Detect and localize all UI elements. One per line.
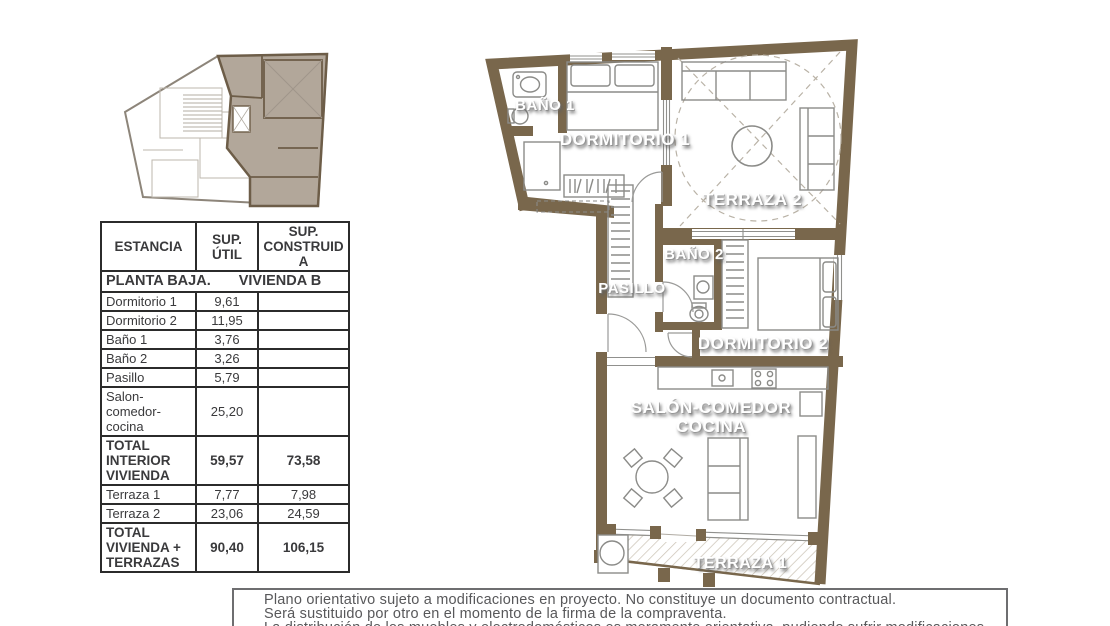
disclaimer-box: Plano orientativo sujeto a modificacione…	[232, 588, 1008, 626]
header-estancia: ESTANCIA	[101, 222, 196, 271]
salon-sofa-icon	[708, 438, 748, 520]
terraza2-sofa-right	[800, 108, 834, 190]
table-row: Dormitorio 1 9,61	[101, 292, 349, 311]
fridge-icon	[800, 392, 822, 416]
dining-table-icon	[624, 449, 682, 507]
bed2-icon	[758, 258, 838, 330]
table-row: Terraza 2 23,06 24,59	[101, 504, 349, 523]
overview-elevator	[233, 106, 250, 132]
label-terraza1: TERRAZA 1	[668, 554, 813, 573]
disclaimer-line1: Plano orientativo sujeto a modificacione…	[264, 593, 998, 607]
section-title: PLANTA BAJA.	[106, 273, 211, 289]
label-salon: SALÓN-COMEDOR COCINA	[622, 398, 800, 436]
corridor-left-wall	[596, 212, 607, 314]
table-section-row: PLANTA BAJA.VIVIENDA B	[101, 271, 349, 292]
label-bano1: BAÑO 1	[500, 96, 590, 115]
label-dormitorio1: DORMITORIO 1	[550, 130, 700, 149]
table-row: Dormitorio 2 11,95	[101, 311, 349, 330]
header-sup-util: SUP. ÚTIL	[196, 222, 258, 271]
terraza2-round-table	[732, 126, 772, 166]
header-sup-construida: SUP. CONSTRUIDA	[258, 222, 349, 271]
table-row-total-interior: TOTAL INTERIOR VIVIENDA 59,57 73,58	[101, 436, 349, 485]
kitchen-counter-icon	[658, 367, 828, 389]
table-row: Salon-comedor-cocina 25,20	[101, 387, 349, 436]
disclaimer-line2: Será sustituido por otro en el momento d…	[264, 607, 998, 621]
label-dormitorio2: DORMITORIO 2	[688, 334, 838, 353]
table-row: Pasillo 5,79	[101, 368, 349, 387]
label-salon-line2: COCINA	[622, 417, 800, 436]
bano2-sink-icon	[694, 276, 713, 299]
disclaimer-line3: La distribución de los muebles y electro…	[264, 621, 998, 626]
table-row: Baño 1 3,76	[101, 330, 349, 349]
label-salon-line1: SALÓN-COMEDOR	[622, 398, 800, 417]
label-pasillo: PASILLO	[586, 279, 678, 298]
door-dormitorio1	[632, 172, 662, 202]
label-bano2: BAÑO 2	[652, 245, 736, 264]
table-row: Terraza 1 7,77 7,98	[101, 485, 349, 504]
section-unit: VIVIENDA B	[239, 274, 321, 289]
table-row: Baño 2 3,26	[101, 349, 349, 368]
terraza1-table-icon	[598, 535, 628, 573]
sideboard-icon	[798, 436, 816, 518]
areas-table: ESTANCIA SUP. ÚTIL SUP. CONSTRUIDA PLANT…	[100, 221, 350, 573]
wardrobe1-icon	[564, 175, 624, 197]
label-terraza2: TERRAZA 2	[680, 190, 825, 209]
overview-plan	[108, 30, 348, 220]
door-entrance	[608, 314, 646, 352]
bathtub-icon	[513, 72, 546, 97]
table-row-total-vivienda: TOTAL VIVIENDA + TERRAZAS 90,40 106,15	[101, 523, 349, 572]
page: ESTANCIA SUP. ÚTIL SUP. CONSTRUIDA PLANT…	[0, 0, 1110, 626]
shower-icon	[524, 142, 560, 190]
table-header-row: ESTANCIA SUP. ÚTIL SUP. CONSTRUIDA	[101, 222, 349, 271]
